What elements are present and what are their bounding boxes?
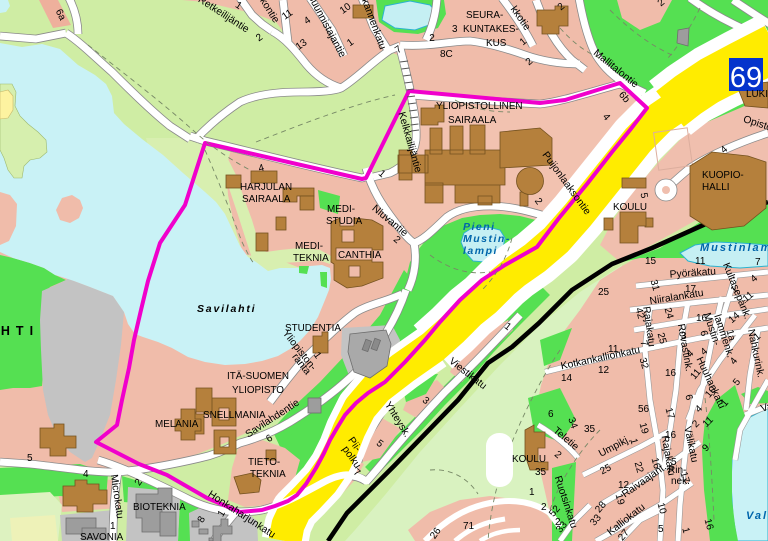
svg-text:KUS: KUS xyxy=(486,38,507,49)
svg-text:MEDI-: MEDI- xyxy=(295,241,323,252)
svg-text:MEDI-: MEDI- xyxy=(327,204,355,215)
svg-text:11: 11 xyxy=(695,256,706,267)
svg-text:2: 2 xyxy=(429,33,435,44)
svg-text:5: 5 xyxy=(27,453,33,464)
svg-text:56: 56 xyxy=(638,404,650,415)
svg-text:ITÄ-SUOMEN: ITÄ-SUOMEN xyxy=(227,371,289,382)
svg-text:HARJULAN: HARJULAN xyxy=(240,182,292,193)
svg-text:Mustinlamp: Mustinlamp xyxy=(700,242,768,254)
svg-text:KOULU: KOULU xyxy=(512,454,546,465)
svg-text:SNELLMANIA: SNELLMANIA xyxy=(203,410,266,421)
svg-text:Valk: Valk xyxy=(746,510,768,522)
svg-text:SAVONIA: SAVONIA xyxy=(80,532,124,541)
svg-text:STUDIA: STUDIA xyxy=(326,216,363,227)
svg-text:lampi: lampi xyxy=(463,245,498,257)
svg-text:71: 71 xyxy=(463,521,475,532)
svg-text:6: 6 xyxy=(548,409,554,420)
svg-text:BIOTEKNIA: BIOTEKNIA xyxy=(133,502,186,513)
svg-text:Pieni: Pieni xyxy=(463,221,496,233)
svg-text:5: 5 xyxy=(658,524,664,535)
svg-text:3: 3 xyxy=(681,331,687,342)
svg-text:TIETO-: TIETO- xyxy=(248,457,280,468)
svg-text:SAIRAALA: SAIRAALA xyxy=(242,194,291,205)
svg-text:KUNTAKES-: KUNTAKES- xyxy=(463,24,519,35)
svg-text:8C: 8C xyxy=(440,49,453,60)
svg-text:17: 17 xyxy=(685,284,697,295)
svg-text:LUKIO: LUKIO xyxy=(746,89,768,100)
svg-text:12: 12 xyxy=(618,480,630,491)
svg-text:3: 3 xyxy=(452,24,458,35)
svg-text:YLIOPISTO: YLIOPISTO xyxy=(232,385,284,396)
svg-text:4: 4 xyxy=(83,469,89,480)
svg-text:35: 35 xyxy=(584,424,596,435)
svg-text:STUDENTIA: STUDENTIA xyxy=(285,323,341,334)
svg-text:Savilahti: Savilahti xyxy=(197,303,256,315)
svg-text:14: 14 xyxy=(561,373,573,384)
svg-text:SAIRAALA: SAIRAALA xyxy=(448,115,497,126)
svg-text:CANTHIA: CANTHIA xyxy=(338,250,382,261)
svg-text:16: 16 xyxy=(665,430,677,441)
svg-text:SEURA-: SEURA- xyxy=(466,10,503,21)
svg-text:16: 16 xyxy=(696,313,708,324)
svg-text:MELANIA: MELANIA xyxy=(155,419,199,430)
svg-text:TEKNIA: TEKNIA xyxy=(293,253,329,264)
svg-text:7: 7 xyxy=(755,257,761,268)
svg-text:SAVILAHTI: SAVILAHTI xyxy=(0,324,39,338)
svg-text:1: 1 xyxy=(110,521,116,532)
svg-text:2: 2 xyxy=(555,517,561,528)
svg-text:35: 35 xyxy=(535,467,547,478)
svg-text:16: 16 xyxy=(665,368,677,379)
svg-text:YLIOPISTOLLINEN: YLIOPISTOLLINEN xyxy=(436,101,523,112)
svg-text:2: 2 xyxy=(541,502,547,513)
svg-text:15: 15 xyxy=(645,256,657,267)
svg-text:TEKNIA: TEKNIA xyxy=(250,469,286,480)
svg-text:KUOPIO-: KUOPIO- xyxy=(702,170,744,181)
svg-text:11: 11 xyxy=(608,344,619,355)
svg-text:25: 25 xyxy=(598,287,610,298)
svg-text:KOULU: KOULU xyxy=(613,202,647,213)
svg-text:5: 5 xyxy=(671,457,677,468)
svg-text:HALLI: HALLI xyxy=(702,182,729,193)
svg-text:12: 12 xyxy=(598,365,610,376)
svg-text:1: 1 xyxy=(529,487,535,498)
svg-text:Mustin-: Mustin- xyxy=(463,233,511,245)
